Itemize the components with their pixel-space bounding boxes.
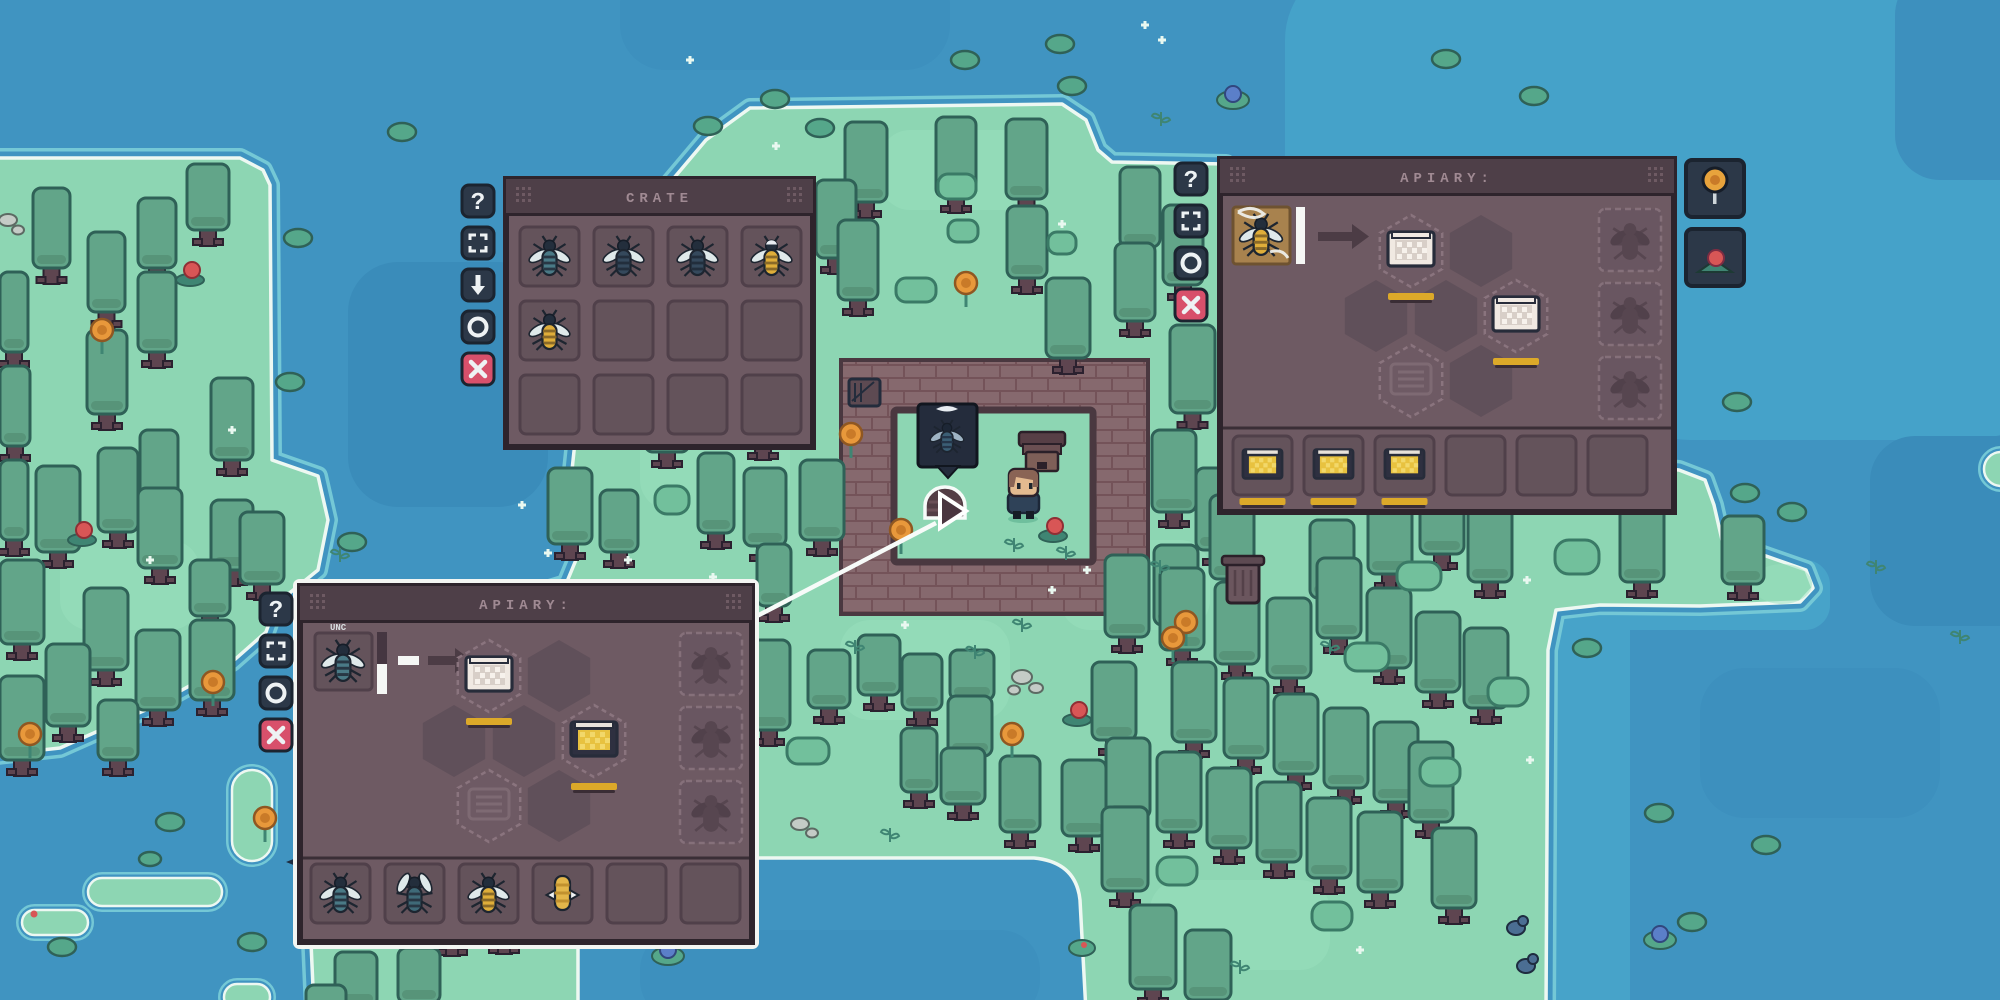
svg-text:APIARY:: APIARY: bbox=[479, 598, 573, 614]
svg-text:APIARY:: APIARY: bbox=[1400, 171, 1494, 187]
svg-text:UNC: UNC bbox=[330, 623, 347, 633]
svg-text:?: ? bbox=[1184, 168, 1198, 195]
svg-text:?: ? bbox=[269, 598, 283, 625]
svg-text:CRATE: CRATE bbox=[626, 191, 693, 207]
svg-text:?: ? bbox=[471, 190, 485, 217]
